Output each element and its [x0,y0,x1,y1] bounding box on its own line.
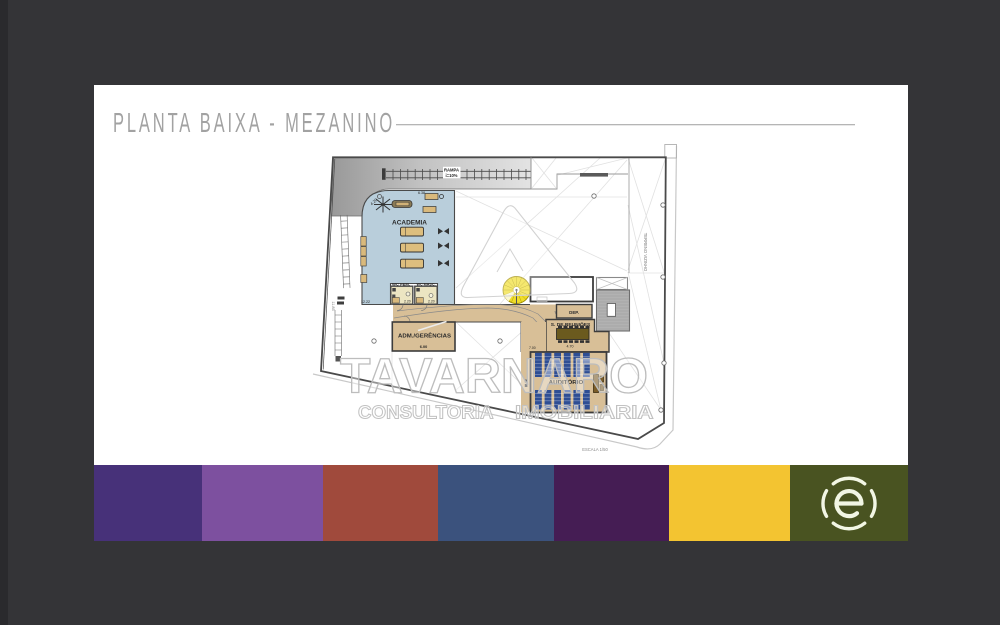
svg-text:i=10%: i=10% [446,173,458,178]
svg-text:IMOBILIARIA: IMOBILIARIA [515,403,654,423]
svg-text:ESCALA 1/50: ESCALA 1/50 [582,447,608,452]
svg-text:RAMPA: RAMPA [444,168,459,173]
svg-text:ADM./GERÊNCIAS: ADM./GERÊNCIAS [398,331,451,339]
svg-text:6.00: 6.00 [420,345,427,349]
svg-text:12.22: 12.22 [361,300,370,304]
svg-text:PLANTA BAIXA - MEZANINO: PLANTA BAIXA - MEZANINO [113,107,395,139]
svg-text:TAVARNARO: TAVARNARO [340,350,648,404]
svg-text:4.70: 4.70 [567,345,574,349]
svg-text:WC MASC.: WC MASC. [417,282,436,286]
svg-text:TERRENO VIZINHO: TERRENO VIZINHO [643,233,648,272]
svg-text:DEP.: DEP. [569,310,579,315]
svg-text:11.85: 11.85 [331,301,335,310]
svg-text:2.20: 2.20 [404,300,411,304]
svg-text:2.20: 2.20 [428,300,435,304]
svg-text:WC FEM.: WC FEM. [392,282,410,286]
svg-text:6.38: 6.38 [418,191,425,195]
svg-text:ACADEMIA: ACADEMIA [392,221,428,227]
svg-text:CONSULTORIA: CONSULTORIA [358,403,494,423]
